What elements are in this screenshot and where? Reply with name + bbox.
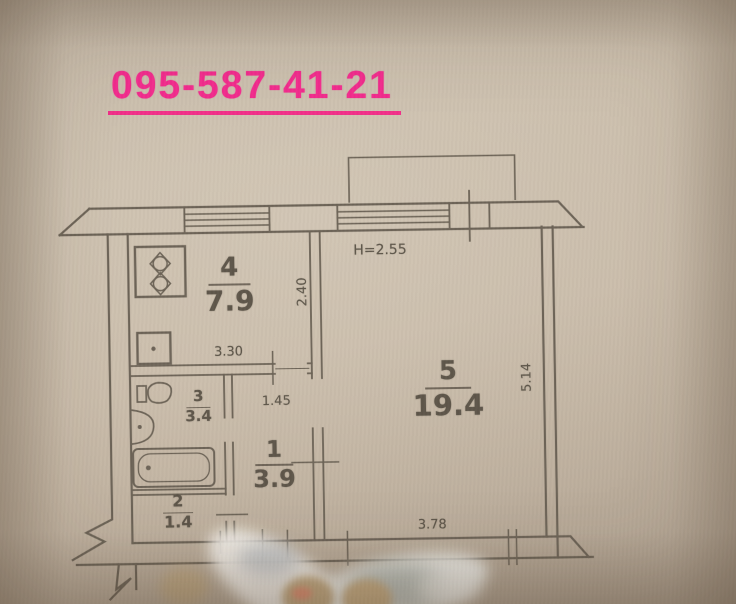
dim-kitchen-width: 3.30 [205, 344, 251, 360]
watermark-blob [160, 568, 208, 604]
dim-hallway-width: 1.45 [253, 393, 299, 409]
watermark-blob [418, 570, 480, 604]
room-number: 3 [178, 389, 218, 405]
exterior-walls [59, 201, 593, 600]
room-number: 1 [248, 437, 300, 462]
bathtub-icon [133, 448, 215, 487]
phone-number: 095-587-41-21 [108, 64, 401, 115]
balcony-outline [349, 155, 516, 203]
stove-icon [135, 246, 186, 297]
dim-kitchen-depth: 2.40 [295, 272, 311, 312]
room-area: 7.9 [202, 286, 258, 316]
room-label-wc: 2 1.4 [156, 493, 201, 531]
room-label-hallway: 1 3.9 [248, 437, 301, 492]
kitchen-sink-icon [137, 333, 170, 365]
room-number: 5 [412, 358, 484, 386]
watermark-blob [238, 543, 300, 575]
wash-basin-icon [131, 410, 154, 444]
dim-living-width: 3.78 [408, 517, 456, 533]
room-number: 2 [156, 493, 200, 510]
room-label-living-room: 5 19.4 [412, 358, 485, 422]
room-number: 4 [201, 254, 257, 282]
ceiling-height-label: H=2.55 [340, 242, 420, 259]
window-icons [184, 190, 490, 245]
toilet-icon [137, 382, 171, 403]
room-area: 3.4 [178, 409, 218, 425]
room-area: 19.4 [412, 390, 484, 422]
room-area: 3.9 [248, 467, 300, 493]
floorplan-photo: 095-587-41-21 [0, 0, 736, 604]
watermark-blob [292, 587, 312, 600]
room-area: 1.4 [156, 514, 200, 531]
room-label-kitchen: 4 7.9 [201, 254, 258, 317]
room-label-bathroom: 3 3.4 [178, 389, 219, 425]
dim-living-depth: 5.14 [519, 357, 535, 397]
